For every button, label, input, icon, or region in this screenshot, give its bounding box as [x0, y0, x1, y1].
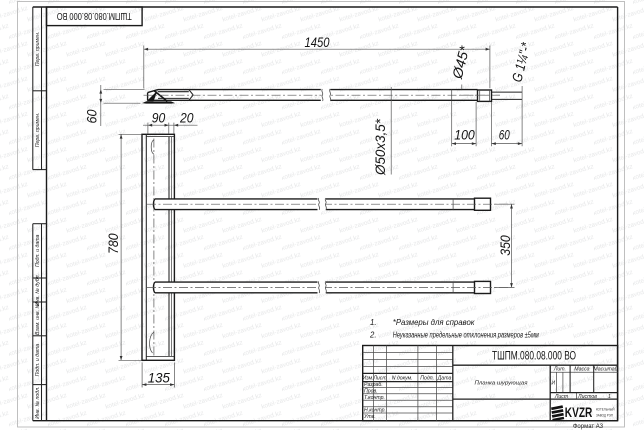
- svg-text:Инв. № дубл.: Инв. № дубл.: [35, 274, 41, 306]
- svg-text:Пров.: Пров.: [364, 389, 378, 395]
- svg-text:1: 1: [608, 394, 611, 400]
- svg-text:60: 60: [499, 127, 510, 143]
- svg-text:KVZR: KVZR: [565, 405, 593, 420]
- svg-text:*Размеры для справок: *Размеры для справок: [393, 318, 475, 327]
- svg-text:Подп.: Подп.: [420, 375, 434, 381]
- svg-text:20: 20: [179, 110, 194, 126]
- svg-text:Разраб.: Разраб.: [364, 382, 383, 388]
- svg-text:N докум.: N докум.: [392, 375, 413, 381]
- svg-text:Формат А3: Формат А3: [573, 424, 604, 430]
- svg-text:ТШПМ.080.08.000 ВО: ТШПМ.080.08.000 ВО: [492, 349, 576, 363]
- svg-text:Перв. примен.: Перв. примен.: [35, 32, 41, 66]
- svg-text:350: 350: [497, 235, 513, 256]
- svg-text:Ø50х3,5*: Ø50х3,5*: [372, 118, 388, 175]
- svg-text:ЗАВОД РЭП: ЗАВОД РЭП: [596, 412, 613, 417]
- svg-text:КОТЕЛЬНЫЙ: КОТЕЛЬНЫЙ: [596, 406, 615, 411]
- svg-text:Неуказанные предельные отклоне: Неуказанные предельные отклонения размер…: [393, 331, 539, 340]
- svg-text:Листов: Листов: [577, 394, 597, 400]
- svg-text:100: 100: [454, 127, 475, 143]
- svg-text:780: 780: [105, 233, 121, 254]
- svg-text:Н.контр.: Н.контр.: [364, 408, 386, 414]
- svg-text:Подп. и дата: Подп. и дата: [35, 234, 41, 267]
- svg-text:90: 90: [152, 110, 166, 126]
- svg-text:Планка шурующая: Планка шурующая: [475, 381, 528, 387]
- svg-text:1450: 1450: [305, 34, 330, 50]
- svg-text:1.: 1.: [370, 318, 377, 327]
- svg-text:Утв.: Утв.: [364, 414, 376, 420]
- svg-text:ТШПМ.080.08.000 ВО: ТШПМ.080.08.000 ВО: [57, 10, 132, 22]
- svg-text:Масштаб: Масштаб: [593, 367, 618, 373]
- svg-text:60: 60: [84, 109, 100, 123]
- svg-text:Перв. примен.: Перв. примен.: [35, 113, 41, 147]
- svg-text:Подп. и дата: Подп. и дата: [35, 344, 41, 377]
- svg-text:135: 135: [148, 370, 170, 386]
- svg-text:Лист: Лист: [554, 394, 569, 400]
- svg-text:Т.контр.: Т.контр.: [364, 395, 385, 401]
- svg-text:Масса: Масса: [574, 367, 589, 373]
- svg-text:Взам. инв. №: Взам. инв. №: [35, 302, 41, 334]
- svg-text:Лист: Лист: [372, 375, 387, 381]
- svg-text:Дата: Дата: [437, 375, 452, 381]
- svg-text:Изм.: Изм.: [363, 375, 374, 381]
- svg-text:И: И: [551, 381, 555, 387]
- svg-text:Инв. № подл.: Инв. № подл.: [35, 386, 41, 418]
- svg-text:2.: 2.: [369, 331, 377, 340]
- svg-text:Лит.: Лит.: [553, 367, 566, 373]
